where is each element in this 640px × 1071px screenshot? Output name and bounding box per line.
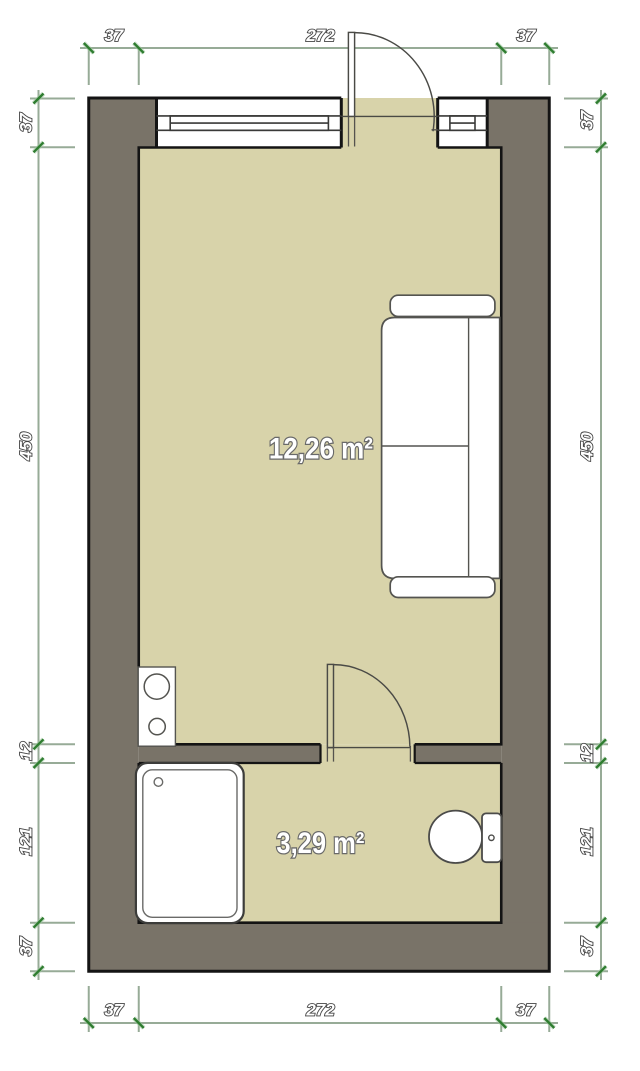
svg-text:37: 37 — [17, 112, 36, 132]
svg-text:12: 12 — [578, 743, 597, 762]
svg-text:12,26 m²: 12,26 m² — [269, 433, 373, 466]
svg-text:37: 37 — [104, 26, 124, 45]
svg-text:37: 37 — [578, 936, 597, 956]
svg-text:121: 121 — [17, 827, 36, 855]
svg-text:450: 450 — [578, 432, 597, 462]
svg-text:37: 37 — [578, 109, 597, 129]
svg-text:3,29 m²: 3,29 m² — [276, 827, 364, 860]
svg-text:12: 12 — [17, 741, 36, 760]
svg-text:37: 37 — [104, 1001, 124, 1020]
svg-text:272: 272 — [305, 26, 335, 45]
svg-text:450: 450 — [17, 431, 36, 461]
svg-text:37: 37 — [516, 1001, 536, 1020]
svg-text:37: 37 — [517, 26, 537, 45]
svg-text:272: 272 — [305, 1001, 335, 1020]
svg-text:37: 37 — [17, 936, 36, 956]
svg-text:121: 121 — [578, 827, 597, 855]
